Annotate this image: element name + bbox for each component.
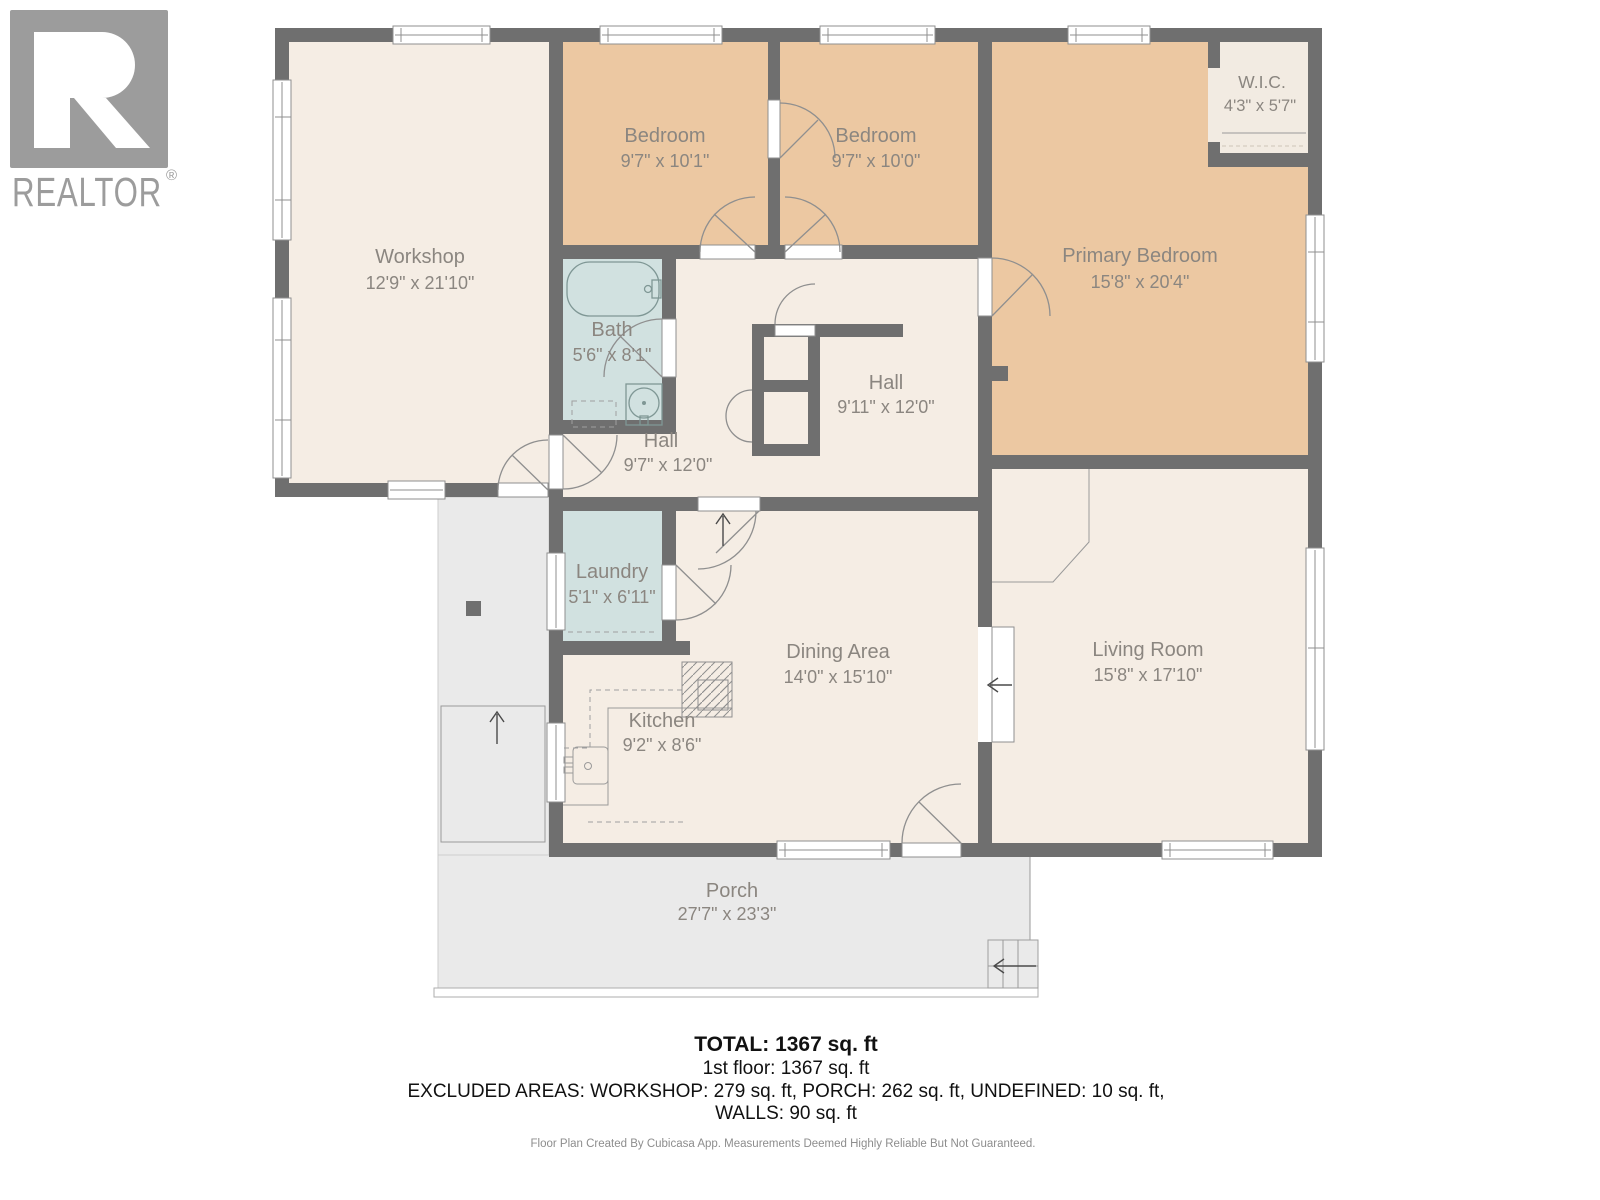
room-label: W.I.C. [1238,72,1286,92]
room-label: Hall [869,372,903,394]
window [820,26,935,44]
window [547,723,565,802]
summary-total: TOTAL: 1367 sq. ft [694,1033,878,1056]
window [1306,548,1324,750]
window [393,26,490,44]
room-dims: 15'8" x 17'10" [1094,665,1203,685]
room-label: Laundry [576,561,648,583]
realtor-logo: REALTOR ® [10,10,177,215]
window [273,298,291,478]
floor-plan: REALTOR ® [0,0,1600,1200]
room-label: Porch [706,880,758,902]
window [1068,26,1150,44]
window [388,481,445,499]
area-summary: TOTAL: 1367 sq. ft 1st floor: 1367 sq. f… [407,1033,1164,1124]
floor-plan-page: REALTOR ® [0,0,1600,1200]
room-dims: 27'7" x 23'3" [678,904,777,924]
room-dims: 5'6" x 8'1" [573,345,652,365]
room-dims: 14'0" x 15'10" [784,667,893,687]
room-dims: 9'7" x 10'0" [832,151,921,171]
porch-step-edge [434,988,1038,997]
room-label: Bedroom [624,125,705,147]
porch-stairs [988,940,1038,988]
room-label: Living Room [1092,639,1203,661]
room-label: Dining Area [786,641,890,663]
deck-strip [438,497,549,855]
room-dims: 9'11" x 12'0" [837,397,934,417]
footer-disclaimer: Floor Plan Created By Cubicasa App. Meas… [531,1138,1036,1150]
room-label: Workshop [375,246,465,268]
room-dims: 12'9" x 21'10" [366,273,475,293]
room-dims: 4'3" x 5'7" [1224,97,1296,115]
summary-walls: WALLS: 90 sq. ft [715,1103,858,1124]
window [273,80,291,240]
room-label: Kitchen [629,710,696,732]
room-label: Bath [591,319,632,341]
window [1306,215,1324,362]
deck-post [466,601,481,616]
room-label: Bedroom [835,125,916,147]
room-dims: 9'2" x 8'6" [623,735,702,755]
realtor-wordmark: REALTOR [12,169,162,215]
window [600,26,722,44]
room-dims: 9'7" x 10'1" [621,151,710,171]
window [547,553,565,630]
room-dims: 15'8" x 20'4" [1091,272,1190,292]
room-dims: 5'1" x 6'11" [568,587,655,607]
window [777,841,890,859]
summary-excluded: EXCLUDED AREAS: WORKSHOP: 279 sq. ft, PO… [407,1081,1164,1102]
room-label: Hall [644,430,678,452]
room-label: Primary Bedroom [1062,245,1218,267]
sliding-door [978,627,1014,742]
window [1162,841,1273,859]
summary-first-floor: 1st floor: 1367 sq. ft [703,1058,871,1079]
registered-mark: ® [166,167,177,184]
chimney-hatch [682,662,732,717]
room-dims: 9'7" x 12'0" [624,455,713,475]
